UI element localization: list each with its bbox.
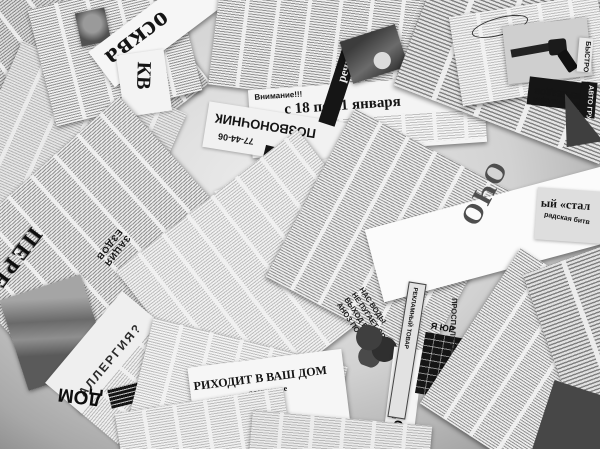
headline-bitva: радская битв bbox=[544, 211, 591, 226]
headline-kv: КВ bbox=[131, 61, 155, 90]
side-banner-dark: АВТО ГРУ bbox=[578, 81, 597, 118]
phone-number: 77-44-06 bbox=[217, 131, 254, 147]
newspaper-collage-photo: осква КВ Внимание!!! с 18 по 21 января П… bbox=[0, 0, 600, 449]
banner-avto-gru: АВТО ГРУ bbox=[584, 85, 594, 120]
headline-dom: ДОМ bbox=[57, 382, 104, 409]
stalingrad-headline-scrap: ый «стал радская битв bbox=[534, 187, 600, 244]
banner-bystro: БЫСТРО bbox=[582, 41, 592, 73]
revolver-grip bbox=[557, 49, 578, 73]
side-banner: БЫСТРО bbox=[577, 37, 594, 72]
